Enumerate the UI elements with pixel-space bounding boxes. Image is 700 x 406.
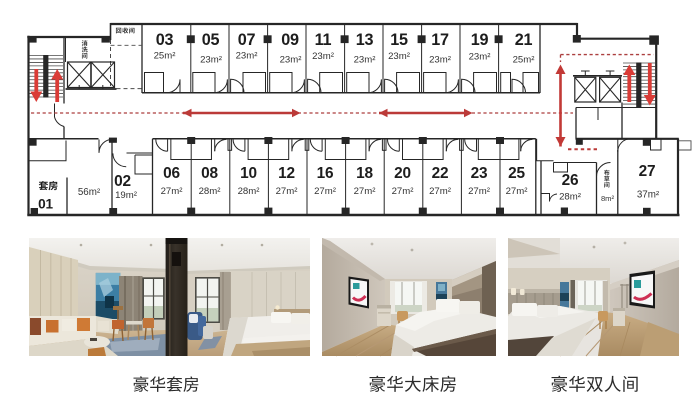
svg-text:19m²: 19m²	[115, 190, 138, 201]
svg-text:12: 12	[278, 165, 295, 182]
svg-text:8m²: 8m²	[601, 194, 615, 203]
svg-text:23m²: 23m²	[354, 55, 377, 66]
svg-text:27m²: 27m²	[276, 186, 299, 197]
svg-text:06: 06	[163, 165, 180, 182]
svg-text:26: 26	[562, 172, 579, 189]
svg-text:25m²: 25m²	[513, 55, 536, 66]
svg-text:56m²: 56m²	[78, 187, 101, 198]
svg-text:25m²: 25m²	[154, 50, 177, 61]
svg-text:23m²: 23m²	[429, 55, 452, 66]
svg-text:11: 11	[315, 31, 332, 49]
svg-text:23: 23	[471, 165, 488, 182]
svg-text:27m²: 27m²	[161, 186, 184, 197]
svg-text:22: 22	[432, 165, 449, 182]
svg-text:01: 01	[38, 197, 53, 212]
svg-text:27m²: 27m²	[468, 186, 491, 197]
svg-text:13: 13	[356, 31, 374, 49]
svg-text:15: 15	[390, 31, 408, 49]
svg-text:25: 25	[508, 165, 525, 182]
svg-text:37m²: 37m²	[637, 190, 660, 201]
svg-text:28m²: 28m²	[559, 192, 582, 203]
svg-text:27m²: 27m²	[429, 186, 452, 197]
svg-text:09: 09	[281, 31, 299, 49]
svg-text:28m²: 28m²	[238, 186, 261, 197]
svg-text:20: 20	[394, 165, 411, 182]
svg-text:27m²: 27m²	[314, 186, 337, 197]
svg-text:18: 18	[356, 165, 373, 182]
svg-text:23m²: 23m²	[200, 55, 223, 66]
svg-text:07: 07	[238, 31, 256, 49]
svg-text:02: 02	[114, 173, 131, 190]
svg-text:23m²: 23m²	[312, 51, 335, 62]
svg-text:17: 17	[431, 31, 449, 49]
svg-text:05: 05	[202, 31, 220, 49]
svg-text:27m²: 27m²	[392, 186, 415, 197]
svg-text:23m²: 23m²	[280, 55, 303, 66]
svg-text:27m²: 27m²	[354, 186, 377, 197]
svg-text:21: 21	[515, 31, 533, 49]
svg-text:23m²: 23m²	[388, 51, 411, 62]
svg-text:27m²: 27m²	[506, 186, 529, 197]
svg-text:03: 03	[156, 31, 174, 49]
svg-text:28m²: 28m²	[199, 186, 222, 197]
svg-text:23m²: 23m²	[469, 52, 492, 63]
svg-text:16: 16	[317, 165, 334, 182]
svg-text:23m²: 23m²	[236, 50, 259, 61]
svg-text:10: 10	[240, 165, 257, 182]
svg-text:19: 19	[471, 31, 489, 49]
svg-text:27: 27	[639, 163, 656, 180]
svg-text:08: 08	[201, 165, 218, 182]
